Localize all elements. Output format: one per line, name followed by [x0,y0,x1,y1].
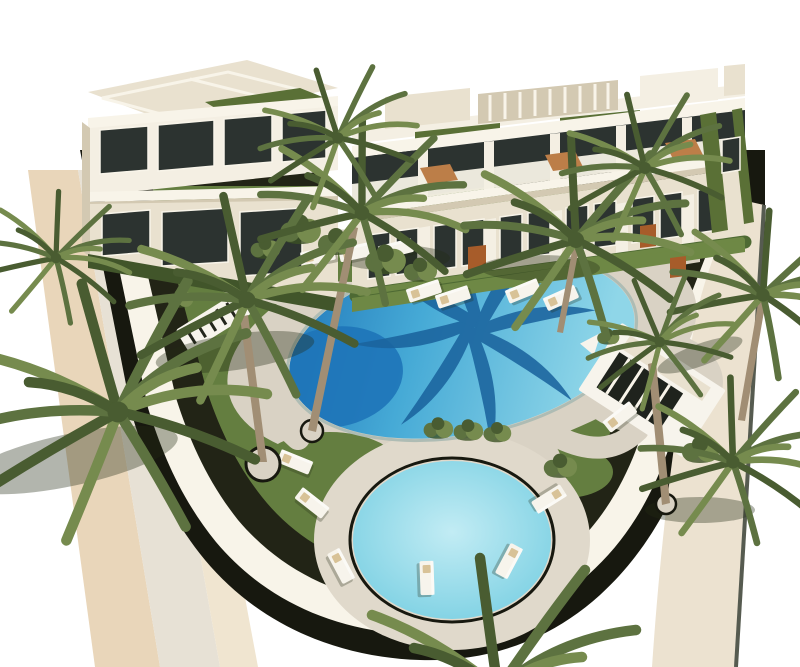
side-wall [82,122,90,258]
small-pool [350,458,554,622]
sun-lounger [416,561,434,598]
aerial-render [0,0,800,667]
render-canvas [0,0,800,667]
